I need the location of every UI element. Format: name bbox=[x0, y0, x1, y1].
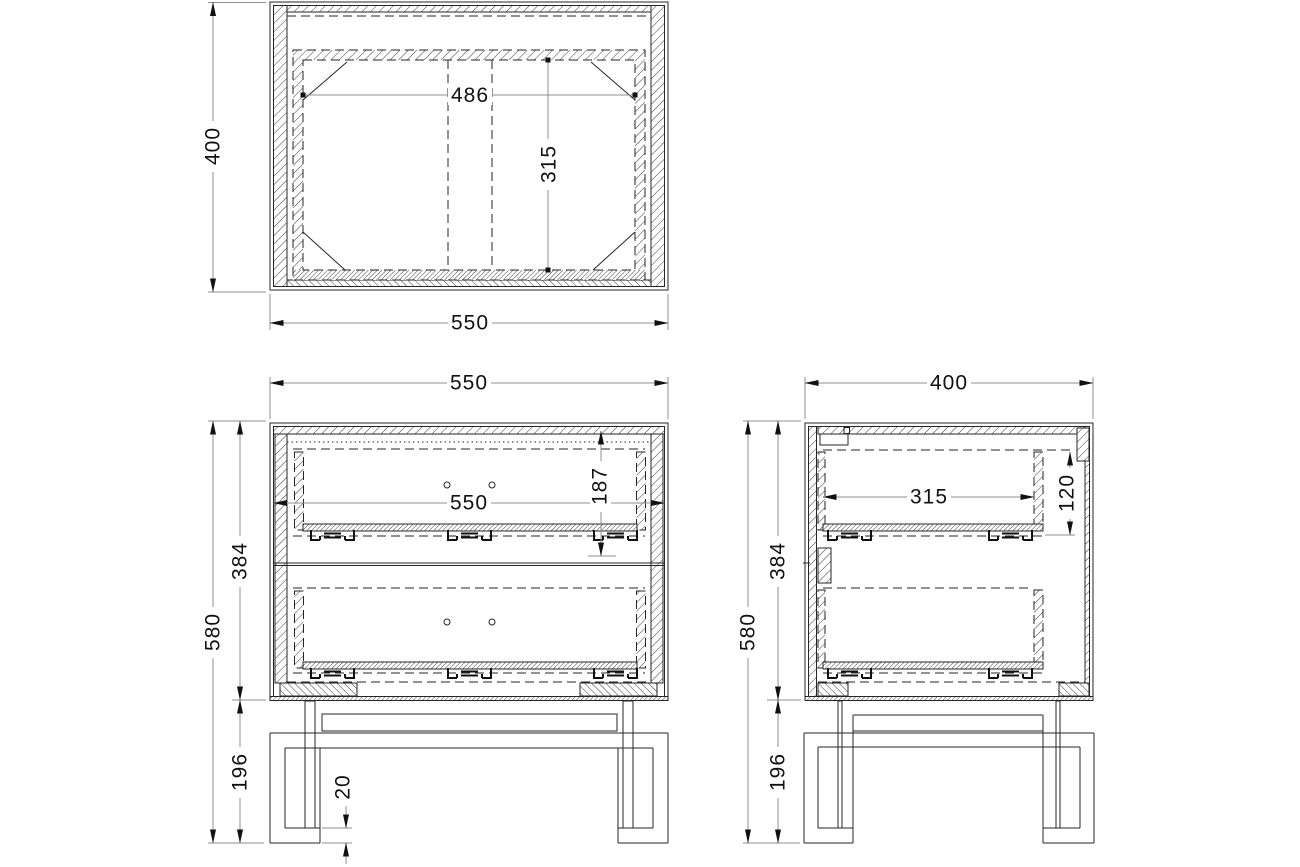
side-view: 400 315 120 580 384 196 bbox=[737, 372, 1095, 844]
handle-hole bbox=[489, 619, 495, 625]
dim-side-base-height: 196 bbox=[767, 753, 790, 791]
dim-front-base-height: 196 bbox=[229, 753, 252, 791]
drawing-sheet: 486 315 400 550 bbox=[0, 0, 1300, 867]
dim-side-depth: 400 bbox=[930, 372, 968, 395]
handle-hole bbox=[444, 619, 450, 625]
dim-top-inner-depth: 315 bbox=[538, 145, 561, 183]
dim-side-total-height: 580 bbox=[737, 613, 760, 651]
dim-top-inner-width: 486 bbox=[451, 84, 489, 107]
base-post bbox=[838, 701, 842, 828]
base-post bbox=[305, 701, 315, 828]
dim-top-depth: 400 bbox=[202, 127, 225, 165]
drawer-divider bbox=[274, 563, 665, 566]
handle-hole bbox=[489, 482, 495, 488]
front-drawer-2 bbox=[293, 588, 646, 678]
dim-front-carcass-height: 384 bbox=[229, 542, 252, 580]
top-view-carcass bbox=[270, 2, 668, 290]
dim-side-drawer-depth: 315 bbox=[910, 486, 948, 509]
handle-hole bbox=[444, 482, 450, 488]
side-drawer-2 bbox=[818, 588, 1043, 678]
dim-side-drawer-side-height: 120 bbox=[1056, 474, 1079, 512]
mid-rail-section bbox=[818, 548, 831, 583]
top-view: 486 315 400 550 bbox=[202, 2, 669, 335]
dim-front-width: 550 bbox=[450, 372, 488, 395]
dim-front-total-height: 580 bbox=[202, 613, 225, 651]
side-base-frame bbox=[804, 701, 1094, 843]
base-stretcher bbox=[322, 714, 617, 731]
base-post bbox=[623, 701, 633, 828]
dim-front-drawer-opening: 187 bbox=[589, 467, 612, 505]
dim-side-carcass-height: 384 bbox=[767, 542, 790, 580]
front-view: 550 550 187 580 384 196 20 bbox=[202, 372, 669, 865]
base-post bbox=[1056, 701, 1060, 828]
front-dimensions: 550 550 187 580 384 196 20 bbox=[202, 372, 669, 865]
technical-drawing-canvas: 486 315 400 550 bbox=[0, 0, 1300, 867]
side-carcass bbox=[803, 423, 1093, 701]
dim-top-width: 550 bbox=[451, 312, 489, 335]
top-rail-section bbox=[820, 434, 848, 445]
dim-front-foot-thickness: 20 bbox=[332, 774, 355, 799]
dim-front-inner-width: 550 bbox=[450, 492, 488, 515]
front-base-frame bbox=[270, 701, 668, 843]
